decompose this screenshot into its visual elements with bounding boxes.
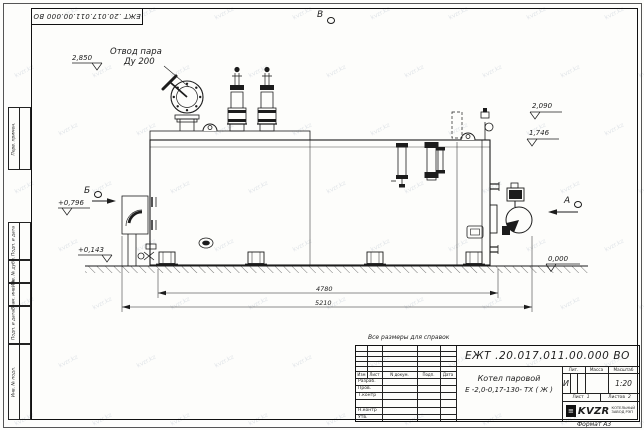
tb-mass-label: Масса bbox=[585, 366, 608, 373]
margin-label: Подп. и дата bbox=[12, 226, 17, 256]
tb-sheet-label: Лист bbox=[572, 395, 583, 400]
tb-role-tcontr: Т.контр bbox=[358, 392, 384, 399]
company-name-line2: ЗАВОД РЭП bbox=[612, 411, 633, 415]
tb-role-check: Пров. bbox=[358, 385, 384, 392]
margin-box-divider bbox=[19, 108, 20, 169]
margin-label: Перв. примен. bbox=[12, 122, 17, 155]
margin-box-divider bbox=[19, 307, 20, 343]
tb-role-approve: Утв. bbox=[358, 414, 384, 421]
tb-line bbox=[570, 373, 571, 393]
elevation-right-upper: 2,090 bbox=[532, 102, 552, 110]
margin-box-divider bbox=[19, 223, 20, 259]
format-note: Формат А3 bbox=[577, 421, 611, 428]
elevation-steam-outlet: 2,850 bbox=[72, 54, 92, 62]
tb-sheet-cell: Лист 1 bbox=[562, 393, 600, 401]
tb-sheet-value: 1 bbox=[587, 395, 590, 400]
tb-line bbox=[356, 356, 456, 357]
elevation-left-upper: +0,796 bbox=[58, 199, 84, 207]
tb-scale-label: Масштаб bbox=[608, 366, 639, 373]
company-logo-text: KVZR bbox=[578, 406, 610, 417]
tb-sheets-value: 2 bbox=[628, 395, 631, 400]
tb-line bbox=[577, 373, 578, 393]
watermark-text: kvzr.kz bbox=[0, 354, 1, 370]
watermark-text: kvzr.kz bbox=[0, 122, 1, 138]
margin-box-vzam-inv: Взам. инв. № bbox=[8, 283, 31, 306]
view-label-b-ref-circle bbox=[94, 191, 102, 198]
company-logo-icon: ≡ bbox=[566, 405, 576, 417]
margin-box-inv-podl: Инв. № подл. bbox=[8, 344, 31, 420]
drawing-sheet: kvzr.kzkvzr.kzkvzr.kzkvzr.kzkvzr.kzkvzr.… bbox=[0, 0, 644, 430]
tb-line bbox=[417, 346, 418, 421]
tb-company-cell: ≡ KVZR КОТЕЛЬНЫЙ ЗАВОД РЭП bbox=[562, 401, 639, 421]
tb-col-doc: N докум. bbox=[382, 371, 417, 378]
margin-box-divider bbox=[19, 284, 20, 305]
tb-col-sign: Подп. bbox=[417, 371, 440, 378]
tb-sheets-cell: Листов 2 bbox=[600, 393, 639, 401]
reference-note: Все размеры для справок bbox=[368, 334, 449, 341]
margin-box-podp-data-1: Подп. и дата bbox=[8, 222, 31, 260]
view-label-v: В bbox=[317, 10, 323, 20]
view-label-a-ref-circle bbox=[574, 201, 582, 208]
steam-outlet-label-line2: Ду 200 bbox=[124, 57, 155, 67]
tb-role-ncontr: Н.контр bbox=[358, 407, 384, 414]
tb-line bbox=[356, 351, 456, 352]
tb-designation: ЕЖТ .20.017.011.00.000 ВО bbox=[456, 346, 639, 366]
tb-product-name-line2: Е -2,0-0,17-130- ТХ ( Ж ) bbox=[456, 384, 562, 396]
tb-line bbox=[356, 361, 456, 362]
dimension-overall-length: 5210 bbox=[315, 299, 332, 307]
tb-line bbox=[440, 346, 441, 421]
elevation-right-mid: 1,746 bbox=[529, 129, 549, 137]
watermark-text: kvzr.kz bbox=[0, 6, 1, 22]
margin-box-divider bbox=[19, 345, 20, 419]
view-label-a: А bbox=[564, 196, 570, 206]
view-label-b: Б bbox=[84, 186, 90, 196]
tb-col-izm: Изм bbox=[356, 371, 367, 378]
watermark-text: kvzr.kz bbox=[0, 238, 1, 254]
tb-col-list: Лист bbox=[367, 371, 382, 378]
margin-label: Взам. инв. № bbox=[12, 280, 17, 310]
tb-lit-label: Лит. bbox=[562, 366, 585, 373]
view-label-v-ref-circle bbox=[327, 17, 335, 24]
elevation-ground: 0,000 bbox=[548, 255, 568, 263]
margin-label: Подп. и дата bbox=[12, 310, 17, 340]
tb-scale-value: 1:20 bbox=[608, 373, 639, 393]
margin-label: Инв. № подл. bbox=[12, 367, 17, 397]
tb-lit-value: И bbox=[562, 373, 570, 393]
title-block: Изм Лист N докум. Подп. Дата Разраб. Про… bbox=[355, 345, 640, 422]
tb-product-name-line1: Котел паровой bbox=[456, 372, 562, 384]
tb-line bbox=[356, 399, 456, 400]
tb-sheets-label: Листов bbox=[608, 395, 625, 400]
dimension-feet-span: 4780 bbox=[316, 285, 333, 293]
steam-outlet-label-line1: Отвод пара bbox=[110, 47, 162, 57]
elevation-left-lower: +0,143 bbox=[78, 246, 104, 254]
tb-role-develop: Разраб. bbox=[358, 378, 384, 385]
tb-col-date: Дата bbox=[440, 371, 456, 378]
margin-box-perv-primen: Перв. примен. bbox=[8, 107, 31, 170]
top-stamp-number: ЕЖТ .20.017.011.00.000 ВО bbox=[32, 9, 142, 24]
margin-box-divider bbox=[19, 261, 20, 282]
margin-box-podp-data-2: Подп. и дата bbox=[8, 306, 31, 344]
top-stamp: ЕЖТ .20.017.011.00.000 ВО bbox=[31, 8, 143, 25]
